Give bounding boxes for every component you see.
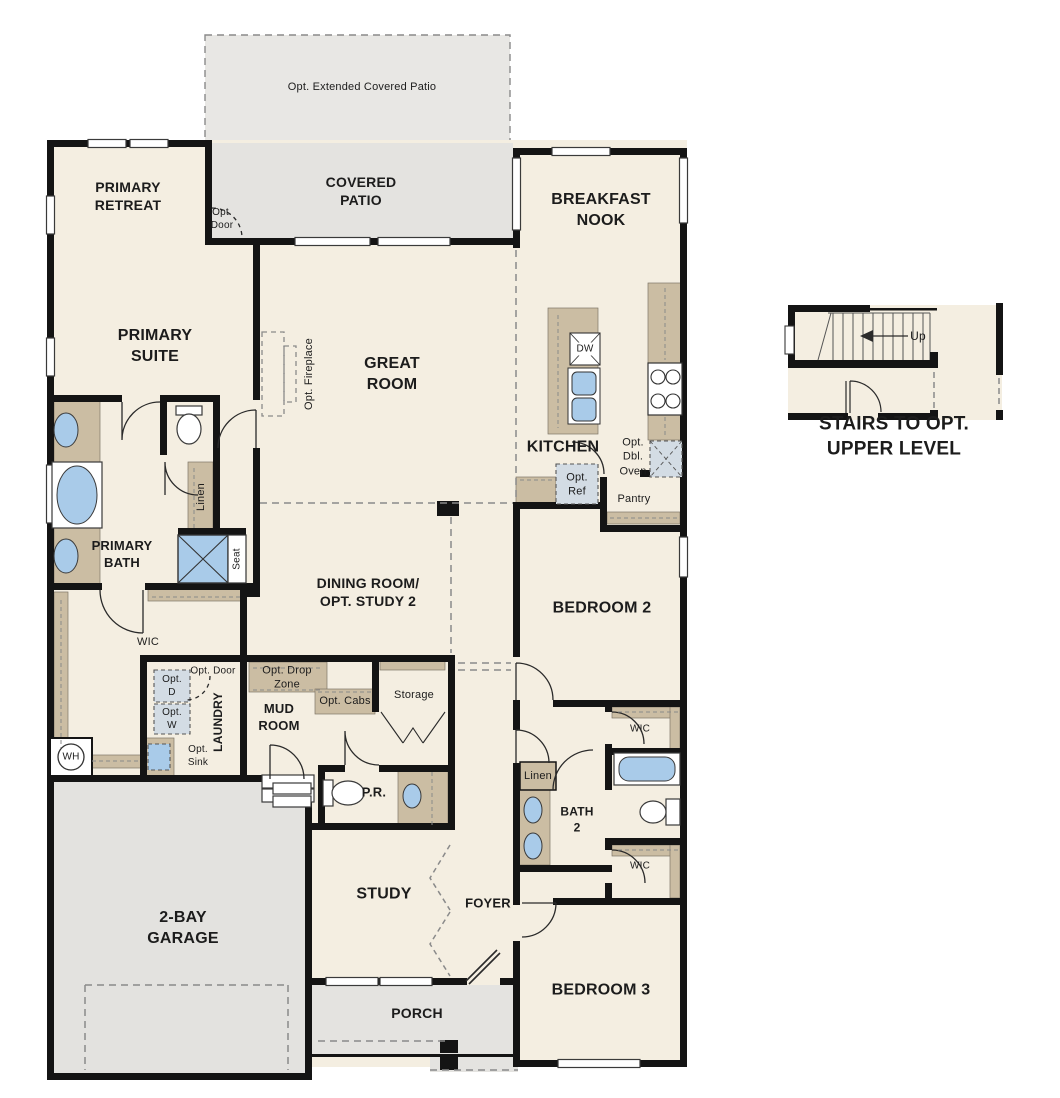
label-opt-d: Opt. D: [162, 673, 182, 699]
label-stairs-caption: STAIRS TO OPT. UPPER LEVEL: [811, 412, 977, 461]
bath2-sink: [524, 833, 542, 859]
label-seat: Seat: [231, 548, 244, 569]
bath2-sink: [524, 797, 542, 823]
floor-plan: Opt. Extended Covered Patio PRIMARY RETR…: [0, 0, 1060, 1098]
toilet: [177, 414, 201, 444]
garage-step: [273, 783, 311, 794]
label-dishwasher: DW: [574, 343, 595, 356]
label-opt-sink: Opt. Sink: [188, 743, 208, 769]
label-great-room: GREAT ROOM: [364, 354, 420, 396]
label-opt-cabs: Opt. Cabs: [319, 694, 370, 708]
bath2-toilet-tank: [666, 799, 680, 825]
primary-tub-basin: [57, 466, 97, 524]
label-foyer: FOYER: [465, 896, 511, 913]
label-opt-door-patio: Opt. Door: [211, 206, 233, 232]
label-wh: WH: [62, 751, 79, 764]
kitchen-counter-south: [516, 477, 556, 503]
bath-sink: [54, 539, 78, 573]
label-primary-bath: PRIMARY BATH: [92, 538, 153, 572]
label-stairs-up: Up: [910, 329, 926, 345]
wic2b-shelf-right: [670, 845, 680, 898]
wic2a-shelf-right: [670, 707, 680, 752]
label-kitchen: KITCHEN: [527, 438, 600, 459]
label-wic-primary: WIC: [137, 635, 159, 649]
opt-laundry-sink: [148, 744, 170, 770]
label-linen-primary: Linen: [194, 483, 208, 511]
label-dining-room: DINING ROOM/ OPT. STUDY 2: [317, 574, 420, 610]
label-bedroom2: BEDROOM 2: [553, 599, 652, 620]
label-porch: PORCH: [391, 1004, 443, 1022]
label-opt-dbl-oven: Opt. Dbl. Oven: [619, 436, 646, 479]
label-opt-fireplace: Opt. Fireplace: [302, 338, 316, 410]
label-wic-bed2-b: WIC: [630, 860, 650, 873]
bath-sink: [54, 413, 78, 447]
label-opt-drop-zone: Opt. Drop Zone: [262, 664, 312, 693]
label-bath2: BATH 2: [560, 804, 593, 835]
pr-toilet: [332, 781, 364, 805]
label-pantry: Pantry: [618, 492, 651, 506]
label-breakfast-nook: BREAKFAST NOOK: [551, 190, 651, 232]
label-primary-retreat: PRIMARY RETREAT: [95, 178, 161, 214]
label-bedroom3: BEDROOM 3: [552, 981, 651, 1002]
bath2-toilet: [640, 801, 666, 823]
label-covered-patio: COVERED PATIO: [326, 173, 397, 209]
label-wic-bed2-a: WIC: [630, 723, 650, 736]
label-primary-suite: PRIMARY SUITE: [118, 326, 193, 368]
garage-step: [273, 796, 311, 807]
label-study: STUDY: [356, 885, 411, 906]
label-opt-extended-patio: Opt. Extended Covered Patio: [288, 80, 437, 94]
label-mud-room: MUD ROOM: [258, 701, 299, 735]
label-laundry: LAUNDRY: [211, 692, 227, 752]
label-pr: P.R.: [362, 785, 386, 802]
label-opt-ref: Opt. Ref: [566, 471, 588, 500]
pr-sink: [403, 784, 421, 808]
label-storage: Storage: [394, 688, 434, 702]
label-garage: 2-BAY GARAGE: [147, 908, 218, 950]
kitchen-counter-right: [648, 283, 682, 440]
label-linen-hall: Linen: [524, 769, 552, 783]
label-opt-door-laundry: Opt. Door: [190, 665, 235, 678]
label-opt-w: Opt. W: [162, 706, 182, 732]
